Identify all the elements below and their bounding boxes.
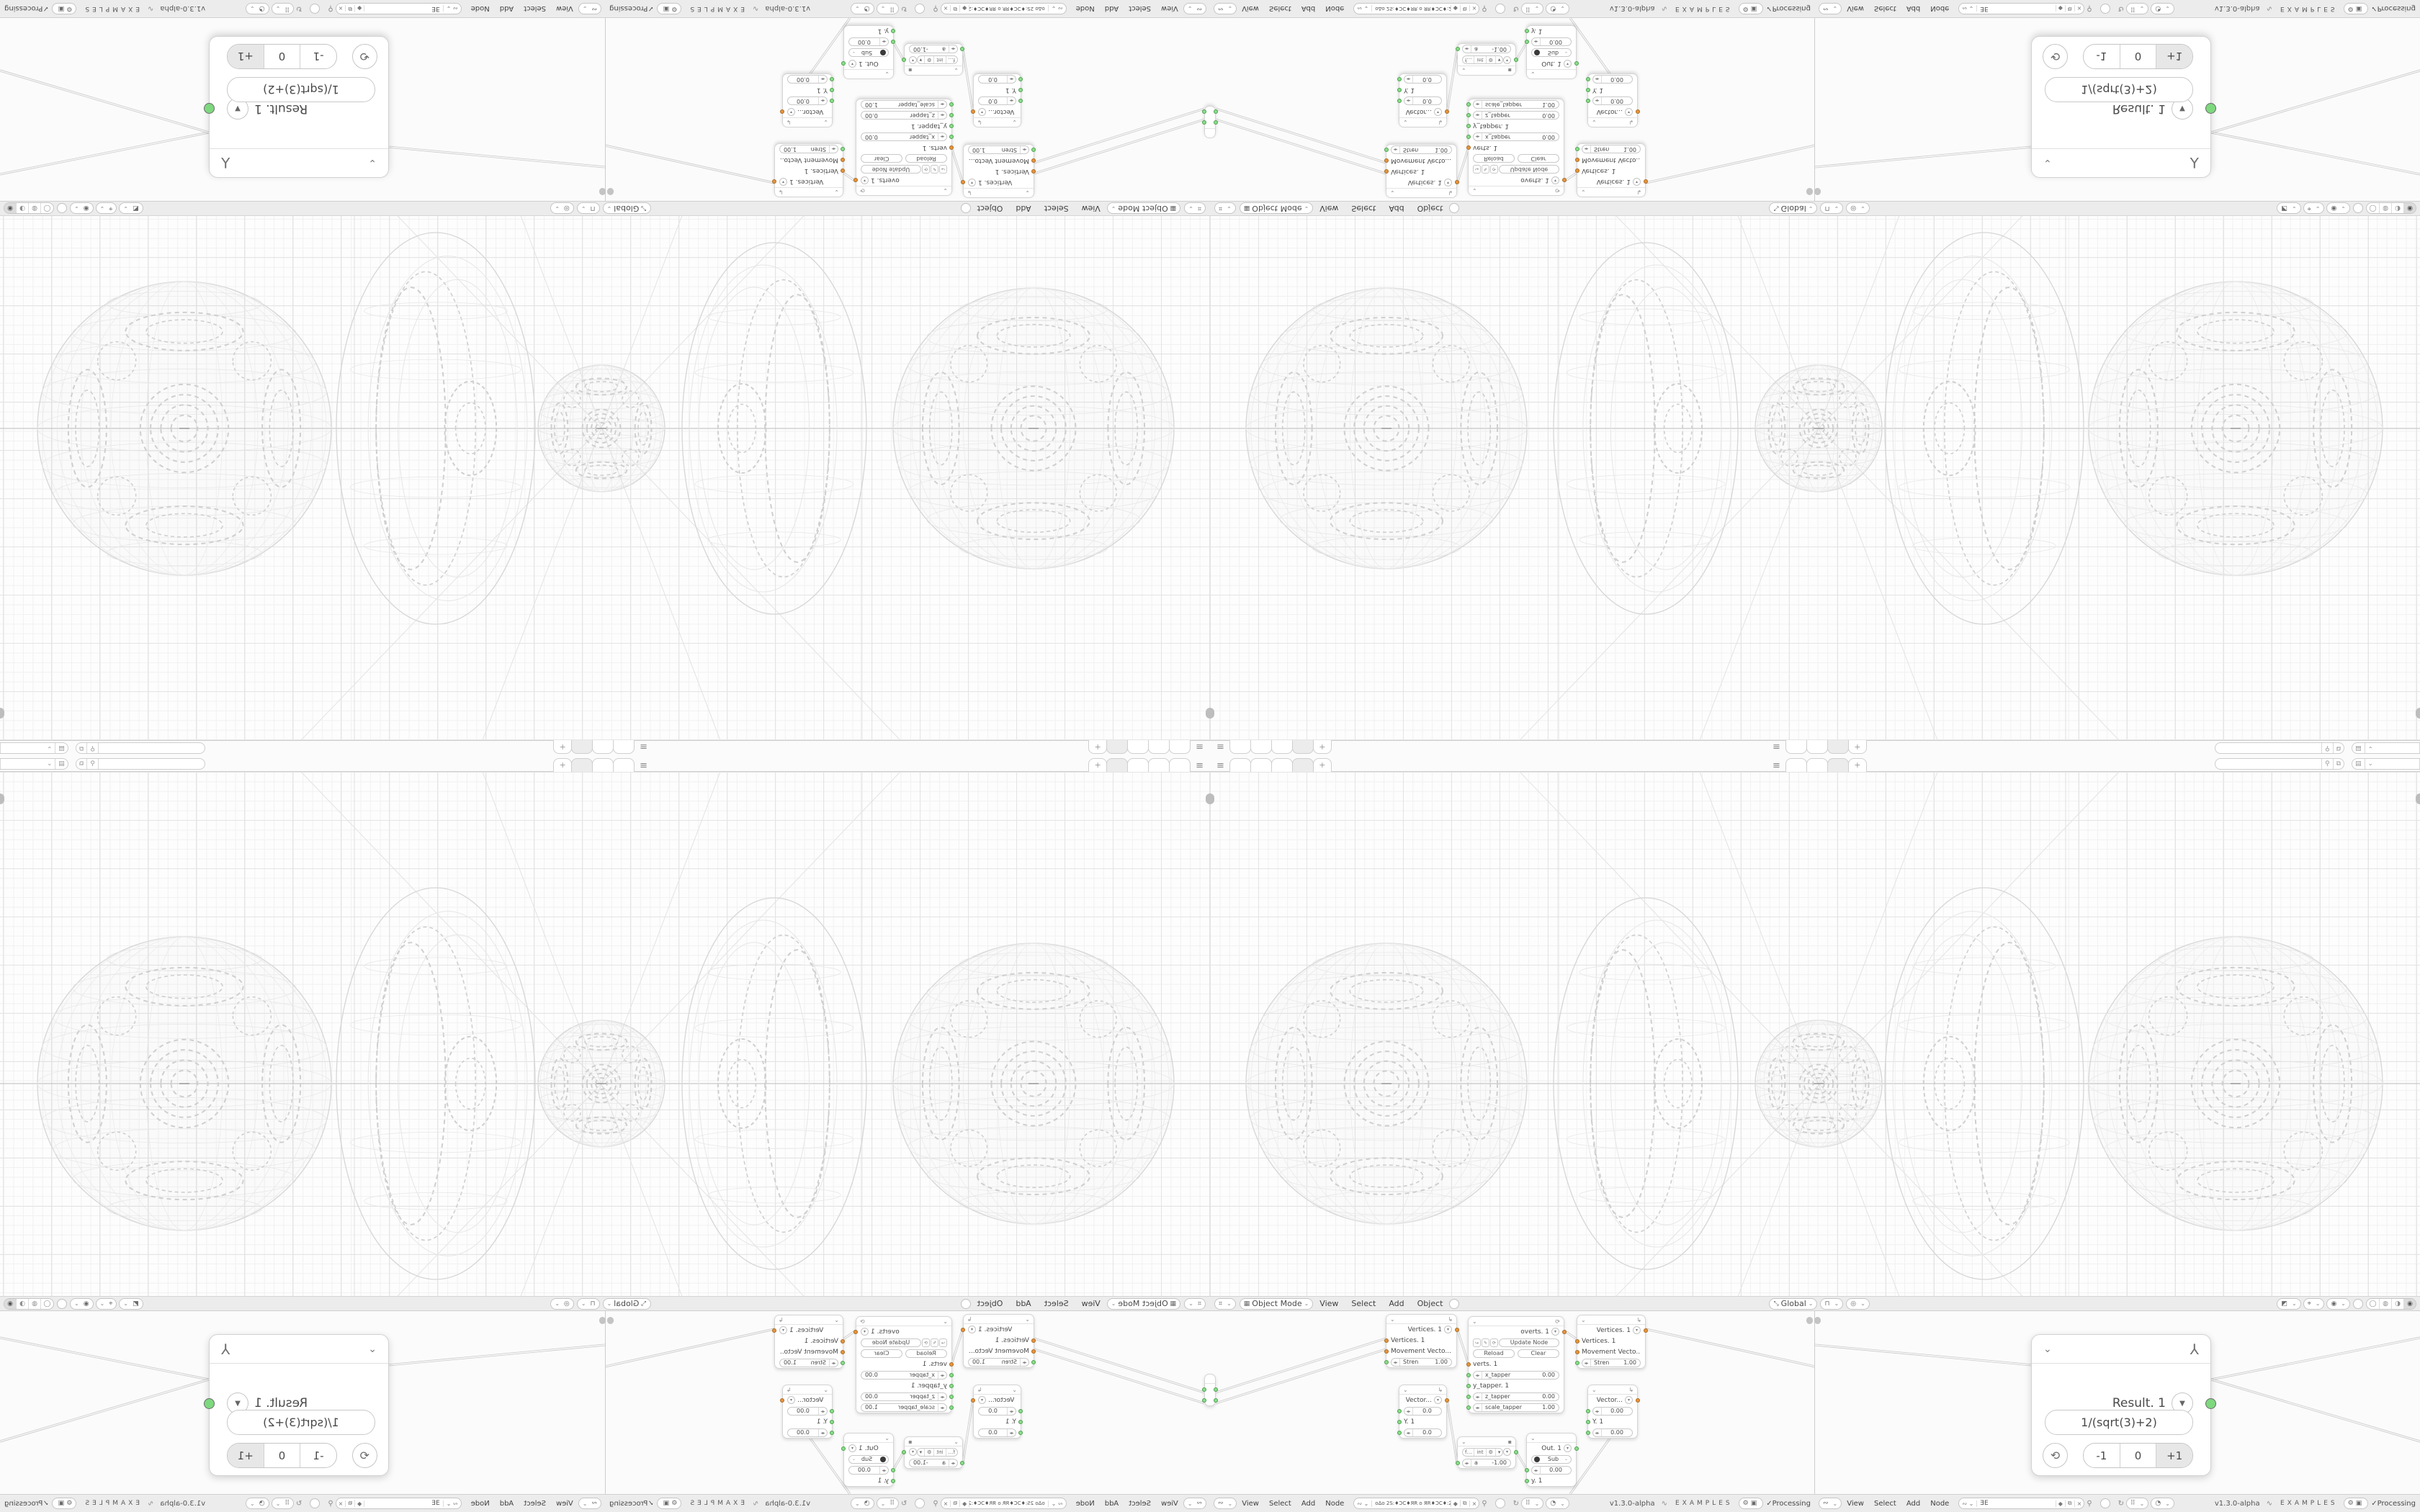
node-clipped[interactable]: ⌄	[1210, 106, 1216, 138]
menu-select[interactable]: Select	[1129, 1500, 1151, 1508]
output-socket[interactable]	[854, 1330, 859, 1334]
input-socket[interactable]	[1575, 1350, 1579, 1354]
minus-one-button[interactable]: -1	[2084, 1444, 2120, 1467]
menu-add[interactable]: Add	[1016, 1299, 1031, 1308]
xray-toggle[interactable]	[2353, 1299, 2363, 1309]
input-socket[interactable]	[1397, 1420, 1402, 1424]
type-option[interactable]: ▾	[1495, 1449, 1503, 1456]
pin-icon[interactable]: ⚲	[2321, 743, 2333, 753]
area-corner-handle[interactable]	[598, 188, 614, 195]
editor-type-button[interactable]: ⌗ ⌄	[1214, 1298, 1236, 1310]
tools-group[interactable]: ⚙▣	[2344, 1498, 2369, 1509]
proportional-edit-toggle[interactable]	[961, 204, 971, 214]
copy-icon[interactable]: ⧉	[2065, 1500, 2074, 1507]
examples-menu[interactable]: EXAMPLES	[82, 1500, 140, 1507]
input-socket[interactable]	[1397, 1431, 1402, 1435]
examples-menu[interactable]: EXAMPLES	[2280, 5, 2338, 12]
toggle-circle[interactable]	[915, 1498, 925, 1508]
datablock-field[interactable]: ⚲ ⧉	[76, 742, 205, 754]
node-editor-right[interactable]: ⌄ ⅄ Result. 1 ▼ 1/(sqrt(3)+2) ⟲ -1 0	[1815, 1311, 2420, 1494]
zero-button[interactable]: 0	[2120, 1444, 2156, 1467]
tool-icon[interactable]: ✎	[931, 1338, 938, 1347]
node-vertices-a[interactable]: ⌄↳Vertices. 1▾Vertices. 1Movement Vecto.…	[963, 144, 1034, 198]
snap-dropdown[interactable]: ⊓ ⌄	[577, 1298, 600, 1310]
tab-active[interactable]	[1106, 740, 1128, 754]
menu-icon[interactable]: ≡	[1196, 742, 1204, 751]
value-slider[interactable]: ◂▸0.0	[1404, 1407, 1442, 1416]
transform-orientation-dropdown[interactable]: ⤡ Global ⌄	[603, 203, 651, 215]
tools-group[interactable]: ⚙▣	[2344, 3, 2369, 14]
clear-button[interactable]: Clear	[861, 155, 902, 163]
input-socket[interactable]	[1466, 1362, 1471, 1367]
dropdown-button[interactable]: ▾	[909, 1448, 917, 1456]
tab[interactable]	[1271, 758, 1293, 772]
datablock-field[interactable]: ⚲ ⧉	[2215, 742, 2344, 754]
editor-type-button[interactable]: ∾⌄	[1214, 3, 1237, 14]
tool-icon[interactable]: ⟳	[922, 1338, 930, 1347]
examples-menu[interactable]: EXAMPLES	[2280, 1500, 2338, 1507]
tab[interactable]	[1127, 758, 1149, 772]
menu-add[interactable]: Add	[1389, 204, 1404, 213]
update-node-button[interactable]: Update Node	[1499, 1338, 1559, 1347]
type-option[interactable]: f…	[1463, 1449, 1474, 1456]
toggle-circle[interactable]	[1495, 1498, 1505, 1508]
dropdown-button[interactable]: ▾	[1625, 1396, 1633, 1404]
copy-icon[interactable]: ⧉	[76, 759, 87, 769]
processing-toggle[interactable]: ✓ Processing	[4, 5, 49, 13]
new-tab-button[interactable]: +	[553, 758, 572, 772]
output-socket[interactable]	[854, 179, 859, 183]
overlays-dropdown[interactable]: ⌖ ⌄	[2303, 203, 2325, 215]
collapse-icon[interactable]: ⌄	[1025, 190, 1030, 197]
type-option[interactable]: ▾	[918, 1449, 926, 1456]
copy-icon[interactable]: ⧉	[346, 1500, 355, 1507]
value-slider[interactable]: ◂▸Stren1.00	[968, 1358, 1029, 1367]
unlink-icon[interactable]: ×	[1469, 6, 1479, 12]
input-socket[interactable]	[1466, 1405, 1471, 1410]
shading-material-icon[interactable]: ◑	[2391, 1299, 2403, 1309]
overlays-dropdown[interactable]: ⌖ ⌄	[96, 203, 117, 215]
terminal-icon[interactable]: ▣	[58, 1500, 65, 1507]
node-overts[interactable]: ⌄⟳overts. 1▾↪✎⟳Update NodeReloadClearver…	[1468, 1316, 1564, 1413]
menu-node[interactable]: Node	[1930, 1500, 1949, 1508]
dropdown-button[interactable]: ▾	[1434, 108, 1442, 116]
output-socket[interactable]	[1455, 1328, 1459, 1332]
value-slider[interactable]: ◂▸0.00	[1592, 1407, 1633, 1416]
input-socket[interactable]	[1586, 1420, 1590, 1424]
terminal-icon[interactable]: ▣	[663, 5, 670, 12]
chevron-down-icon[interactable]: ⌄	[44, 743, 56, 753]
processing-toggle[interactable]: ✓ Processing	[4, 1500, 49, 1508]
dropdown-button[interactable]: ▾	[1444, 179, 1452, 186]
tool-icon[interactable]: ✎	[931, 166, 938, 174]
type-option[interactable]: ⚙	[925, 1449, 934, 1456]
terminal-icon[interactable]: ▣	[2356, 5, 2362, 12]
value-slider[interactable]: ◂▸0.00	[848, 38, 889, 47]
value-slider[interactable]: ◂▸x_tapper0.00	[1473, 1371, 1559, 1380]
grid-dropdown[interactable]: ⠿⌄	[1521, 1498, 1543, 1509]
menu-view[interactable]: View	[1847, 1500, 1864, 1508]
menu-select[interactable]: Select	[1351, 204, 1376, 213]
dropdown-button[interactable]: ▾	[909, 56, 917, 64]
output-socket[interactable]	[1574, 1446, 1579, 1451]
collapse-icon[interactable]: ⌄	[1581, 1317, 1586, 1323]
falloff-dropdown[interactable]: ◎ ⌄	[550, 1298, 574, 1310]
dropdown-button[interactable]: ▾	[779, 178, 787, 186]
value-slider[interactable]: ◂▸0.0	[978, 97, 1016, 106]
menu-icon[interactable]: ≡	[1773, 761, 1780, 770]
gear-icon[interactable]: ⚙	[671, 5, 677, 12]
type-option[interactable]: int	[934, 1449, 946, 1456]
type-option[interactable]: ▾	[1495, 57, 1503, 64]
reload-button[interactable]: Reload	[1473, 1349, 1515, 1358]
dropdown-button[interactable]: ▾	[978, 1396, 986, 1404]
output-socket[interactable]	[2205, 1398, 2216, 1409]
pin-icon[interactable]: ⚲	[87, 743, 99, 753]
image-selector-field[interactable]: ▤ ⌄ ⧉	[0, 758, 68, 770]
menu-select[interactable]: Select	[524, 1500, 546, 1508]
dropdown-button[interactable]: ▾	[1551, 176, 1559, 184]
display-dropdown[interactable]: ◔⌄	[851, 1498, 874, 1509]
node-tree-name-field[interactable]: oΔo 2S:♦ƆC♦ЯR o ЯR♦ƆC♦:2S oΔo	[969, 6, 1047, 12]
expression-field[interactable]: 1/(sqrt(3)+2)	[227, 1410, 375, 1435]
menu-view[interactable]: View	[1082, 204, 1101, 213]
editor-type-button[interactable]: ∾⌄	[578, 3, 601, 14]
falloff-dropdown[interactable]: ◎ ⌄	[1846, 1298, 1870, 1310]
menu-select[interactable]: Select	[1129, 5, 1151, 13]
collapse-icon[interactable]: ⌄	[1581, 189, 1586, 196]
menu-view[interactable]: View	[1319, 1299, 1338, 1308]
shading-dropdown[interactable]: ◉ ⌄	[2326, 203, 2350, 215]
shield-icon[interactable]: ◆	[355, 1500, 364, 1507]
input-socket[interactable]	[1397, 1409, 1402, 1413]
minus-one-button[interactable]: -1	[300, 1444, 336, 1467]
value-slider[interactable]: ◂▸0.00	[1592, 97, 1633, 106]
transform-orientation-dropdown[interactable]: ⤡ Global ⌄	[603, 1298, 651, 1310]
type-option[interactable]: int	[1474, 1449, 1485, 1456]
node-vector-b[interactable]: ⌄↳Vector...▾◂▸0.00Y. 1◂▸0.00	[782, 1385, 833, 1439]
output-socket[interactable]	[842, 1446, 846, 1451]
dropdown-button[interactable]: ▾	[1564, 60, 1572, 68]
node-tree-name-field[interactable]: oΔo 2S:♦ƆC♦ЯR o ЯR♦ƆC♦:2S oΔo	[1372, 6, 1450, 12]
dropdown-button[interactable]: ▾	[1503, 56, 1511, 64]
new-tab-button[interactable]: +	[1848, 758, 1867, 772]
falloff-dropdown[interactable]: ◎ ⌄	[1846, 203, 1870, 215]
value-slider[interactable]: ◂▸x_tapper0.00	[1473, 133, 1559, 142]
menu-icon[interactable]: ≡	[640, 742, 647, 751]
value-slider[interactable]: ◂▸a-1.00	[1462, 1459, 1511, 1467]
dropdown-button[interactable]: ▾	[1434, 1396, 1442, 1404]
reload-button[interactable]: Reload	[905, 155, 947, 163]
transform-orientation-dropdown[interactable]: ⤡ Global ⌄	[1769, 1298, 1817, 1310]
toggle-circle[interactable]	[310, 1498, 320, 1508]
shading-mode-group[interactable]: ◯ ◍ ◑ ◉	[4, 1298, 54, 1310]
processing-toggle[interactable]: ✓ Processing	[609, 5, 654, 13]
type-option[interactable]: f…	[946, 57, 957, 64]
new-tab-button[interactable]: +	[1313, 758, 1332, 772]
editor-type-button[interactable]: ∾⌄	[578, 1498, 601, 1509]
menu-view[interactable]: View	[1242, 5, 1259, 13]
gizmo-dropdown[interactable]: ◩ ⌄	[2277, 1298, 2300, 1310]
clear-button[interactable]: Clear	[861, 1349, 902, 1358]
zero-button[interactable]: 0	[2120, 45, 2156, 68]
output-socket[interactable]	[902, 1450, 907, 1454]
node-out[interactable]: ⌄Out. 1▾Sub⌄◂▸0.00y. 1	[843, 1433, 894, 1487]
refresh-icon[interactable]: ↻	[901, 5, 907, 13]
collapse-icon[interactable]: ⌄	[943, 188, 948, 194]
pin-icon[interactable]: ⚲	[2087, 1500, 2092, 1508]
output-socket[interactable]	[1644, 1328, 1648, 1333]
value-slider[interactable]: ◂▸0.00	[1531, 38, 1572, 47]
value-slider[interactable]: ◂▸scale_tapper1.00	[1473, 1403, 1559, 1412]
pin-icon[interactable]: ⚲	[933, 5, 938, 13]
tab[interactable]	[1148, 740, 1170, 754]
plus-one-button[interactable]: +1	[228, 45, 264, 68]
tools-group[interactable]: ⚙▣	[657, 1498, 682, 1509]
image-selector-field[interactable]: ▤ ⌄ ⧉	[2352, 758, 2420, 770]
tool-icon[interactable]: ⟳	[1490, 166, 1498, 174]
dropdown-button[interactable]: ▾	[1444, 1326, 1452, 1333]
type-option[interactable]: int	[934, 57, 946, 64]
node-clipped[interactable]: ⌄	[1210, 1374, 1216, 1406]
area-corner-handle[interactable]	[1806, 1317, 1822, 1324]
terminal-icon[interactable]: ▣	[58, 5, 65, 12]
node-clipped[interactable]: ⌄	[1204, 1374, 1210, 1406]
chevron-down-icon[interactable]: ⌄	[2365, 759, 2377, 769]
value-slider[interactable]: ◂▸Stren1.00	[1582, 1359, 1641, 1367]
menu-node[interactable]: Node	[471, 5, 490, 13]
zero-button[interactable]: 0	[264, 45, 301, 68]
tab[interactable]	[1785, 758, 1807, 772]
dropdown-button[interactable]: ▾	[861, 1328, 869, 1336]
toggle-circle[interactable]	[2100, 4, 2110, 14]
menu-icon[interactable]: ≡	[640, 761, 647, 770]
menu-icon[interactable]: ≡	[1773, 742, 1780, 751]
terminal-icon[interactable]: ▣	[1751, 1500, 1757, 1507]
clear-button[interactable]: Clear	[1518, 1349, 1559, 1358]
new-tab-button[interactable]: +	[553, 740, 572, 754]
tab-active[interactable]	[571, 740, 593, 754]
tool-icon[interactable]: ✎	[1482, 166, 1489, 174]
collapse-icon[interactable]: ⌄	[1025, 1316, 1030, 1323]
unlink-icon[interactable]: ×	[2074, 6, 2084, 12]
shading-rendered-icon[interactable]: ◉	[4, 204, 17, 214]
tab-active[interactable]	[1292, 758, 1314, 772]
menu-node[interactable]: Node	[1076, 1500, 1095, 1508]
pin-icon[interactable]: ⚲	[87, 759, 99, 769]
copy-icon[interactable]: ⧉	[2333, 759, 2344, 769]
minus-one-button[interactable]: -1	[2084, 45, 2120, 68]
node-overts[interactable]: ⌄⟳overts. 1▾↪✎⟳Update NodeReloadClearver…	[856, 1316, 952, 1413]
node-tree-name-field[interactable]: oΔo 2S:♦ƆC♦ЯR o ЯR♦ƆC♦:2S oΔo	[1372, 1500, 1450, 1506]
clear-button[interactable]: Clear	[1518, 155, 1559, 163]
node-result[interactable]: ⌄ ⅄ Result. 1 ▼ 1/(sqrt(3)+2) ⟲ -1 0	[2031, 36, 2211, 178]
gear-icon[interactable]: ⚙	[1743, 5, 1749, 12]
copy-icon[interactable]: ⧉	[76, 743, 87, 753]
input-socket[interactable]	[1466, 1373, 1471, 1377]
menu-add[interactable]: Add	[1906, 1500, 1920, 1508]
type-select-group[interactable]: f…int⚙▾	[1462, 1448, 1503, 1457]
menu-add[interactable]: Add	[1301, 5, 1315, 13]
shield-icon[interactable]: ◆	[960, 6, 969, 12]
display-dropdown[interactable]: ◔⌄	[2151, 3, 2174, 14]
menu-view[interactable]: View	[1082, 1299, 1101, 1308]
input-socket[interactable]	[1586, 1409, 1590, 1413]
tab-active[interactable]	[1827, 740, 1849, 754]
toggle-circle[interactable]	[1495, 4, 1505, 14]
pin-icon[interactable]: ⚲	[1482, 1500, 1487, 1508]
cycle-button[interactable]: ⟲	[352, 44, 377, 69]
menu-object[interactable]: Object	[977, 1299, 1003, 1308]
dropdown-button[interactable]: ▾	[968, 179, 976, 186]
node-tree-selector[interactable]: ∾ ⌄ƎE◆⧉×	[336, 1498, 462, 1509]
shading-rendered-icon[interactable]: ◉	[2403, 204, 2416, 214]
value-slider[interactable]: ◂▸scale_tapper1.00	[861, 1403, 947, 1412]
shield-icon[interactable]: ◆	[1451, 6, 1460, 12]
menu-node[interactable]: Node	[1076, 5, 1095, 13]
transform-orientation-dropdown[interactable]: ⤡ Global ⌄	[1769, 203, 1817, 215]
node-vertices-a[interactable]: ⌄↳Vertices. 1▾Vertices. 1Movement Vecto.…	[1386, 1314, 1457, 1368]
operation-select[interactable]: Sub⌄	[1531, 49, 1572, 58]
menu-icon[interactable]: ≡	[1216, 761, 1224, 770]
collapse-icon[interactable]: ⌄	[823, 120, 828, 126]
copy-icon[interactable]: ⧉	[951, 1500, 960, 1507]
tool-icon[interactable]: ↪	[1473, 166, 1481, 174]
tools-group[interactable]: ⚙▣	[52, 3, 77, 14]
copy-icon[interactable]: ⧉	[2333, 743, 2344, 753]
display-dropdown[interactable]: ◔⌄	[246, 3, 269, 14]
value-slider[interactable]: ◂▸x_tapper0.00	[861, 1371, 947, 1380]
refresh-icon[interactable]: ↻	[296, 5, 302, 13]
plus-one-button[interactable]: +1	[228, 1444, 264, 1467]
grid-dropdown[interactable]: ⠿⌄	[877, 1498, 899, 1509]
output-socket[interactable]	[1636, 1398, 1640, 1403]
editor-type-button[interactable]: ⌗ ⌄	[1184, 203, 1206, 215]
area-resize-handle[interactable]	[1206, 793, 1210, 804]
copy-icon[interactable]: ⧉	[1460, 5, 1469, 12]
value-slider[interactable]: ◂▸0.0	[1404, 97, 1442, 106]
copy-icon[interactable]: ⧉	[346, 5, 355, 12]
tab[interactable]	[1250, 740, 1272, 754]
output-socket[interactable]	[972, 110, 976, 114]
shading-solid-icon[interactable]: ◍	[2379, 1299, 2391, 1309]
copy-icon[interactable]: ⧉	[0, 759, 1, 769]
dropdown-button[interactable]: ▾	[1633, 178, 1641, 186]
output-socket[interactable]	[781, 1398, 785, 1403]
tab[interactable]	[613, 758, 635, 772]
output-socket[interactable]	[1203, 1387, 1207, 1392]
unlink-icon[interactable]: ×	[941, 1500, 951, 1507]
dropdown-button[interactable]: ▾	[1503, 1448, 1511, 1456]
node-tree-name-field[interactable]: oΔo 2S:♦ƆC♦ЯR o ЯR♦ƆC♦:2S oΔo	[969, 1500, 1047, 1506]
gear-icon[interactable]: ⚙	[66, 1500, 72, 1507]
output-socket[interactable]	[204, 1398, 215, 1409]
dropdown-button[interactable]: ▾	[861, 176, 869, 184]
menu-view[interactable]: View	[1161, 1500, 1178, 1508]
node-editor-right[interactable]: ⌄ ⅄ Result. 1 ▼ 1/(sqrt(3)+2) ⟲ -1 0	[0, 1311, 605, 1494]
collapse-icon[interactable]: ⌄	[1012, 120, 1017, 126]
node-tree-name-field[interactable]: ƎE	[364, 1500, 442, 1507]
collapse-icon[interactable]: ⌄	[954, 1439, 959, 1445]
node-vertices-b[interactable]: ⌄↳Vertices. 1▾Vertices. 1Movement Vecto.…	[774, 1315, 843, 1369]
type-option[interactable]: ▾	[918, 57, 926, 64]
gizmo-dropdown[interactable]: ◩ ⌄	[2277, 203, 2300, 215]
value-slider[interactable]: ◂▸0.0	[1404, 76, 1442, 84]
tab[interactable]	[1148, 758, 1170, 772]
gizmo-dropdown[interactable]: ◩ ⌄	[119, 203, 143, 215]
node-math[interactable]: ⌄▪f…int⚙▾▾◂▸a-1.00	[1457, 43, 1516, 76]
node-editor-left[interactable]: ⌄↳Vertices. 1▾Vertices. 1Movement Vecto.…	[1210, 18, 1815, 201]
xray-toggle[interactable]	[2353, 204, 2363, 214]
node-vector-a[interactable]: ⌄↳Vector...▾◂▸0.0Y. 1◂▸0.0	[1399, 1385, 1447, 1439]
menu-view[interactable]: View	[1161, 5, 1178, 13]
value-slider[interactable]: ◂▸a-1.00	[1462, 45, 1511, 54]
output-socket[interactable]	[1203, 1398, 1207, 1403]
output-socket[interactable]	[842, 62, 846, 66]
node-vector-b[interactable]: ⌄↳Vector...▾◂▸0.00Y. 1◂▸0.00	[782, 73, 833, 127]
tools-group[interactable]: ⚙▣	[52, 1498, 77, 1509]
menu-select[interactable]: Select	[524, 5, 546, 13]
value-slider[interactable]: ◂▸a-1.00	[909, 1459, 958, 1467]
node-math[interactable]: ⌄▪f…int⚙▾▾◂▸a-1.00	[904, 43, 963, 76]
input-socket[interactable]	[1384, 1360, 1389, 1364]
type-option[interactable]: f…	[1463, 57, 1474, 64]
tab[interactable]	[1785, 740, 1807, 754]
output-socket[interactable]	[1562, 1330, 1567, 1334]
chevron-down-icon[interactable]: ⌄	[44, 759, 56, 769]
dropdown-button[interactable]: ▾	[968, 1326, 976, 1333]
input-socket[interactable]	[1466, 1384, 1471, 1388]
node-tree-selector[interactable]: ∾ ⌄ƎE◆⧉×	[1958, 1498, 2084, 1509]
value-slider[interactable]: ◂▸scale_tapper1.00	[861, 101, 947, 109]
input-socket[interactable]	[1575, 1361, 1579, 1365]
menu-add[interactable]: Add	[1016, 204, 1031, 213]
value-slider[interactable]: ◂▸Stren1.00	[779, 145, 838, 154]
input-socket[interactable]	[1525, 1479, 1529, 1483]
shield-icon[interactable]: ◆	[1451, 1500, 1460, 1507]
node-out[interactable]: ⌄Out. 1▾Sub⌄◂▸0.00y. 1	[843, 25, 894, 79]
shading-mode-group[interactable]: ◯ ◍ ◑ ◉	[2366, 203, 2416, 215]
menu-object[interactable]: Object	[977, 204, 1003, 213]
toggle-circle[interactable]	[915, 4, 925, 14]
menu-select[interactable]: Select	[1874, 5, 1896, 13]
node-tree-name-field[interactable]: ƎE	[1977, 1500, 2055, 1507]
menu-object[interactable]: Object	[1417, 204, 1443, 213]
terminal-icon[interactable]: ▣	[663, 1500, 670, 1507]
new-tab-button[interactable]: +	[1088, 758, 1107, 772]
node-tree-selector[interactable]: ∾ ⌄oΔo 2S:♦ƆC♦ЯR o ЯR♦ƆC♦:2S oΔo◆⧉×	[941, 3, 1067, 14]
examples-menu[interactable]: EXAMPLES	[1675, 1500, 1733, 1507]
image-selector-field[interactable]: ▤ ⌄ ⧉	[2352, 742, 2420, 754]
value-slider[interactable]: ◂▸0.00	[1592, 76, 1633, 84]
collapse-icon[interactable]: ⌄	[1592, 1387, 1597, 1393]
node-tree-selector[interactable]: ∾ ⌄oΔo 2S:♦ƆC♦ЯR o ЯR♦ƆC♦:2S oΔo◆⧉×	[1353, 1498, 1479, 1509]
value-slider[interactable]: ◂▸0.00	[787, 1428, 828, 1437]
output-socket[interactable]	[962, 181, 966, 185]
menu-add[interactable]: Add	[1906, 5, 1920, 13]
update-node-button[interactable]: Update Node	[861, 1338, 921, 1347]
value-slider[interactable]: ◂▸Stren1.00	[779, 1359, 838, 1367]
shield-icon[interactable]: ◆	[2056, 6, 2065, 12]
gear-icon[interactable]: ⚙	[1743, 1500, 1749, 1507]
collapse-icon[interactable]: ⌄	[834, 1317, 839, 1323]
value-slider[interactable]: ◂▸Stren1.00	[1391, 1358, 1452, 1367]
editor-type-button[interactable]: ⌗ ⌄	[1214, 203, 1236, 215]
menu-add[interactable]: Add	[500, 1500, 514, 1508]
collapse-icon[interactable]: ⌄	[1012, 1387, 1017, 1393]
node-editor-right[interactable]: ⌄ ⅄ Result. 1 ▼ 1/(sqrt(3)+2) ⟲ -1 0	[0, 18, 605, 201]
node-tree-selector[interactable]: ∾ ⌄ƎE◆⧉×	[336, 3, 462, 14]
